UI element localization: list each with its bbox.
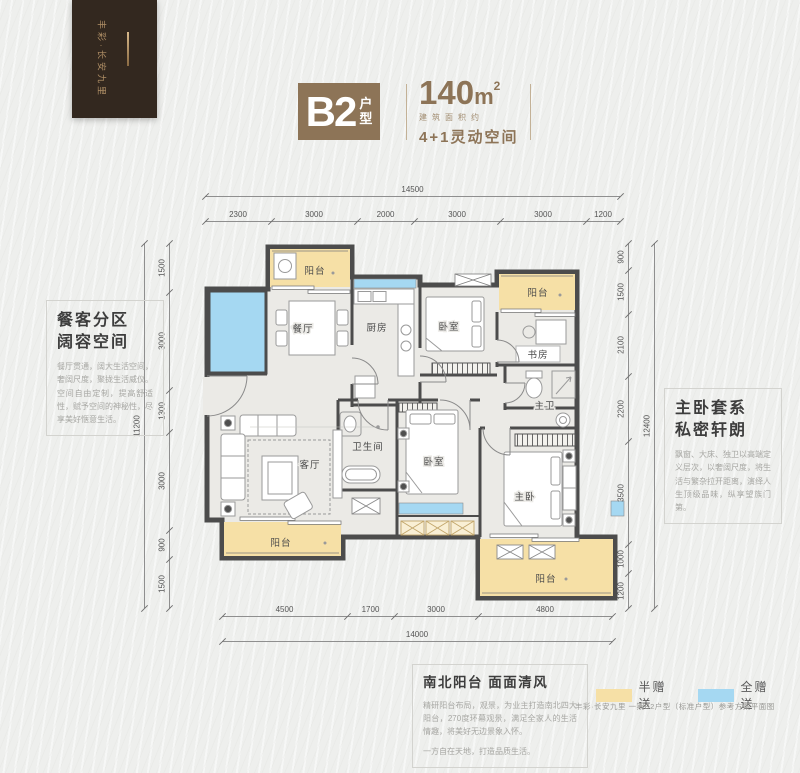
- room-label-bathroom: 卫生间: [352, 441, 384, 453]
- legend-half-gift-swatch: [596, 689, 632, 702]
- area-caption: 建筑面积约: [419, 112, 518, 123]
- crossed-window-box: [455, 274, 491, 286]
- room-label-balcony-tr: 阳台: [527, 287, 548, 299]
- unit-code-box: B2 户型: [298, 83, 380, 140]
- floorplan-page: 丰彩·长安九里 B2 户型 140m2 建筑面积约 4+1灵动空间: [0, 0, 800, 773]
- logo-gold-line: [127, 32, 129, 66]
- room-label-living: 客厅: [299, 459, 320, 471]
- dim-bottom-segments: 4500 1700 3000 4800: [222, 604, 612, 617]
- title-divider-right: [530, 84, 531, 140]
- brand-logo: 丰彩·长安九里: [72, 0, 157, 118]
- area-value-row: 140m2: [419, 76, 518, 109]
- room-label-kitchen: 厨房: [366, 322, 387, 334]
- callout-dining: 餐客分区 阔容空间 餐厅贯通，阔大生活空间，奢阔尺度，聚拢生活威仪。空间自由定制…: [46, 300, 164, 436]
- callout-master-title1: 主卧套系: [675, 400, 747, 417]
- room-label-master-bath: 主卫: [534, 400, 555, 412]
- callout-dining-body: 餐厅贯通，阔大生活空间，奢阔尺度，聚拢生活威仪。空间自由定制，提高舒适性，赋予空…: [57, 360, 153, 426]
- callout-balcony: 南北阳台 面面清风 精研阳台布局，观景，为业主打造南北四大阳台，270度环幕观景…: [412, 664, 588, 768]
- tagline: 4+1灵动空间: [419, 126, 518, 147]
- dim-right-total: 12400: [642, 243, 655, 608]
- unit-code-suffix: 户型: [359, 97, 372, 127]
- callout-master: 主卧套系 私密轩朗 飘窗、大床、独卫以高端定义层次，以奢阔尺度，将生活与繁杂拉开…: [664, 388, 782, 524]
- bed-master: [504, 450, 576, 526]
- footnote: 丰彩·长安九里 一期B2户型（标准户型）参考方案平面图: [575, 701, 775, 712]
- legend-full-gift-swatch: [698, 689, 734, 702]
- bedroom-bay-window: [399, 503, 463, 514]
- washing-machine: [274, 253, 296, 279]
- room-label-balcony-br: 阳台: [535, 573, 556, 585]
- room-label-study: 书房: [527, 349, 548, 361]
- callout-dining-title2: 阔容空间: [57, 334, 129, 351]
- callout-balcony-body1: 精研阳台布局，观景，为业主打造南北四大阳台，270度环幕观景，满足全家人的生活情…: [423, 699, 577, 739]
- kitchen-window-bay: [354, 279, 416, 288]
- unit-code: B2: [306, 91, 356, 133]
- callout-balcony-body2: 一方自在天地，打造品质生活。: [423, 745, 577, 758]
- gift-full-garden: [209, 291, 266, 373]
- logo-vertical-text: 丰彩·长安九里: [96, 20, 109, 98]
- dim-bottom-total: 14000: [222, 629, 612, 642]
- bed-middle-bedroom: [398, 410, 458, 494]
- title-block: B2 户型 140m2 建筑面积约 4+1灵动空间: [298, 76, 531, 147]
- room-label-master-bedroom: 主卧: [514, 491, 535, 503]
- room-label-bedroom-top: 卧室: [438, 321, 459, 333]
- dim-top-segments: 2300 3000 2000 3000 3000 1200: [205, 209, 620, 222]
- callout-master-body: 飘窗、大床、独卫以高端定义层次，以奢阔尺度，将生活与繁杂拉开距离，演绎人生顶级品…: [675, 448, 771, 514]
- room-label-balcony-tl: 阳台: [304, 265, 325, 277]
- callout-dining-title1: 餐客分区: [57, 312, 129, 329]
- callout-balcony-title: 南北阳台 面面清风: [423, 674, 577, 692]
- title-divider: [406, 84, 407, 140]
- floor-plan: 阳台 餐厅 厨房 卧室 阳台 书房 主卫 卫生间 卧室 客厅 主卧 阳台 阳台: [195, 240, 625, 610]
- room-label-dining: 餐厅: [292, 323, 313, 335]
- room-label-balcony-bl: 阳台: [270, 537, 291, 549]
- room-label-bedroom-mid: 卧室: [423, 456, 444, 468]
- dim-right-segments: 900 1500 2100 2200 3500 1000 1200: [616, 243, 629, 608]
- callout-master-title2: 私密轩朗: [675, 422, 747, 439]
- dim-top-total: 14500: [205, 184, 620, 197]
